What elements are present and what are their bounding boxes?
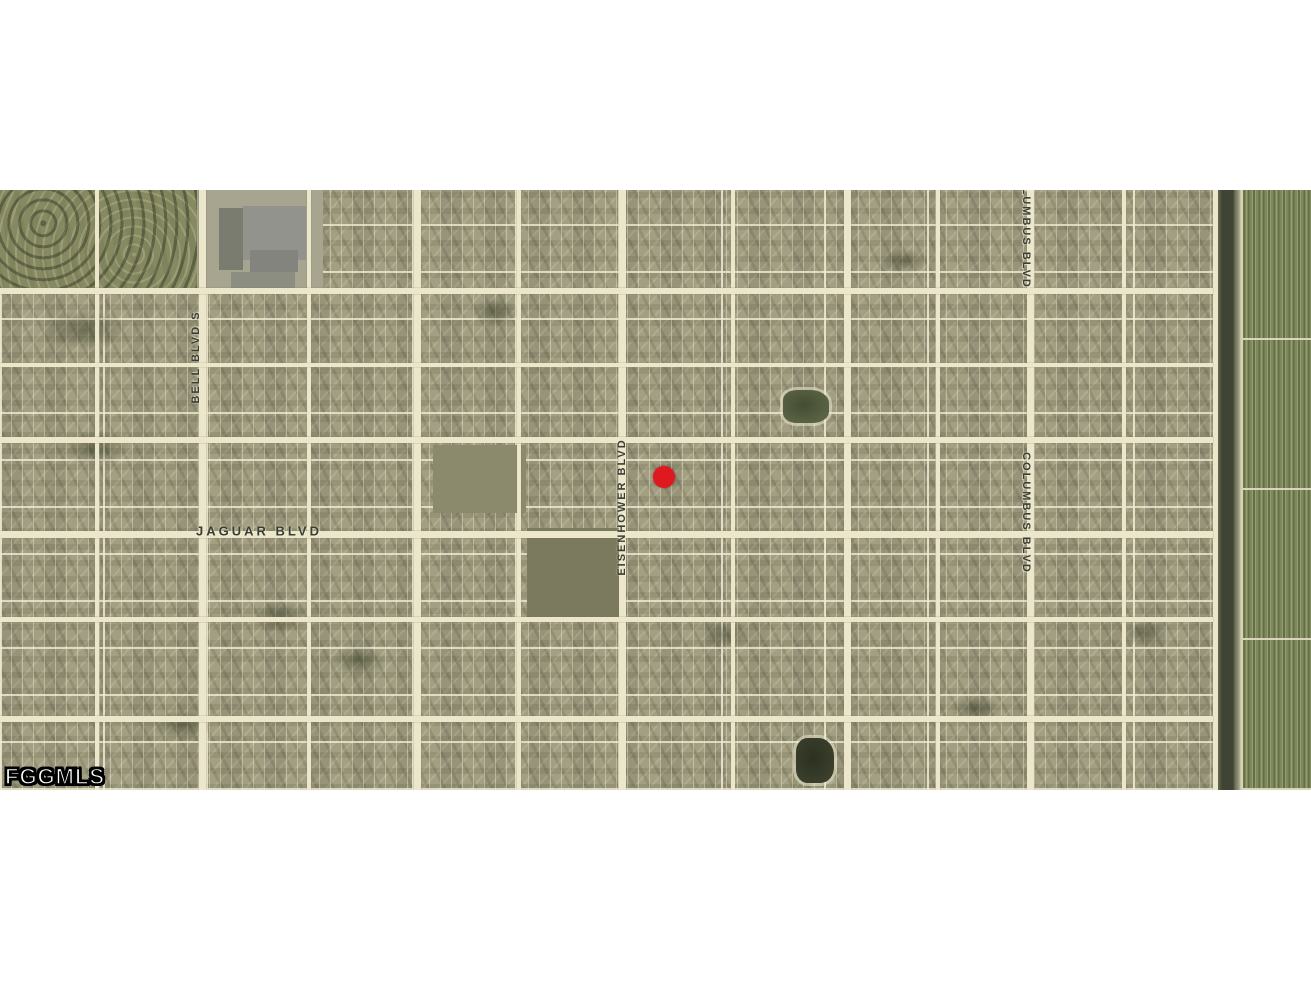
street-label: EISENHOWER BLVD — [616, 438, 628, 575]
pond — [796, 738, 834, 783]
road — [936, 190, 940, 790]
road — [0, 716, 1213, 722]
fggmls-watermark: FGGMLS — [5, 764, 105, 790]
road — [1213, 190, 1218, 790]
street-label: BELL BLVD S — [190, 310, 202, 403]
vacant-parcel — [433, 445, 526, 513]
farm-fields — [1243, 190, 1311, 790]
vegetation-patch — [880, 248, 928, 274]
school-parking — [219, 208, 243, 270]
vegetation-patch — [700, 620, 752, 650]
school-building-annex — [250, 250, 298, 272]
road — [1122, 190, 1126, 790]
vegetation-patch — [40, 310, 130, 350]
satellite-map[interactable]: BELL BLVD SJAGUAR BLVDEISENHOWER BLVDCOL… — [0, 190, 1311, 790]
street-label: JAGUAR BLVD — [196, 524, 322, 539]
road — [517, 190, 521, 790]
road — [307, 190, 311, 790]
street-label: COLUMBUS BLVD — [1020, 190, 1032, 289]
road — [844, 190, 851, 790]
road — [0, 363, 1213, 367]
road — [95, 190, 99, 790]
road — [0, 437, 1213, 443]
vegetation-patch — [330, 645, 386, 675]
road — [0, 617, 1213, 622]
street-label: COLUMBUS BLVD — [1020, 452, 1032, 574]
vegetation-patch — [470, 298, 520, 326]
road — [731, 190, 735, 790]
road — [414, 190, 421, 790]
vacant-parcel — [527, 528, 623, 621]
road — [199, 190, 206, 790]
vegetation-patch — [1120, 620, 1166, 646]
pond — [783, 390, 829, 423]
property-location-marker — [653, 466, 675, 488]
